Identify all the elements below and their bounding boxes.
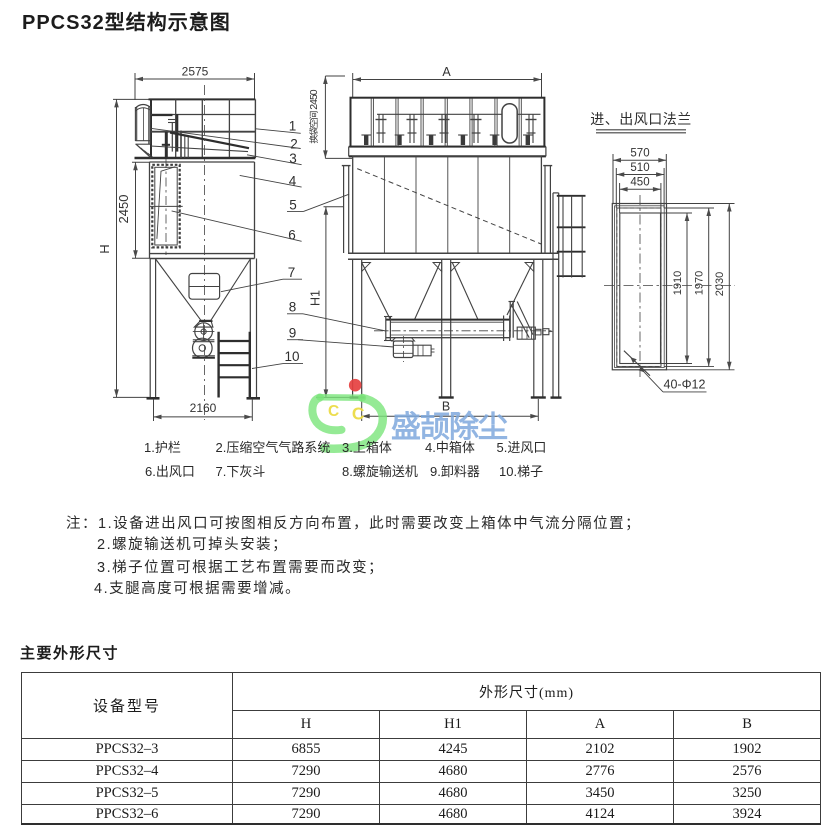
svg-text:2160: 2160 xyxy=(190,401,217,415)
svg-text:570: 570 xyxy=(630,148,649,160)
svg-text:2575: 2575 xyxy=(182,65,209,79)
svg-text:9: 9 xyxy=(289,326,297,341)
svg-text:2450: 2450 xyxy=(116,195,131,224)
svg-text:进、出风口法兰: 进、出风口法兰 xyxy=(590,111,692,127)
svg-text:换袋空间 2450: 换袋空间 2450 xyxy=(308,89,320,143)
svg-text:2: 2 xyxy=(290,137,298,152)
svg-text:1970: 1970 xyxy=(694,271,706,295)
svg-text:C: C xyxy=(352,404,365,424)
svg-text:H1: H1 xyxy=(309,290,323,306)
svg-text:1: 1 xyxy=(289,119,297,134)
svg-text:7: 7 xyxy=(288,265,296,280)
svg-text:10: 10 xyxy=(284,349,299,364)
svg-text:6: 6 xyxy=(288,228,296,243)
svg-text:C: C xyxy=(328,403,339,420)
svg-text:510: 510 xyxy=(630,162,649,174)
svg-text:1910: 1910 xyxy=(672,271,684,295)
svg-text:H: H xyxy=(97,244,112,253)
svg-text:450: 450 xyxy=(630,177,649,189)
svg-text:5: 5 xyxy=(289,198,297,213)
svg-text:A: A xyxy=(442,65,451,79)
svg-text:2030: 2030 xyxy=(714,272,726,296)
svg-text:8: 8 xyxy=(289,300,297,315)
svg-text:40-Φ12: 40-Φ12 xyxy=(664,378,706,392)
